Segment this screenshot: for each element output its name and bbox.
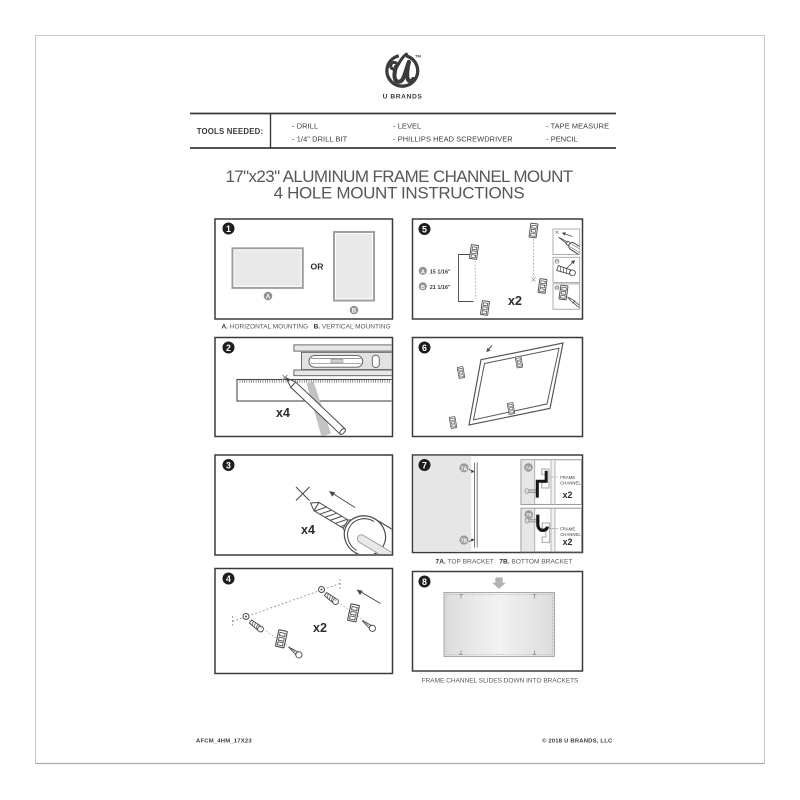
- svg-text:- LEVEL: - LEVEL: [393, 122, 421, 131]
- svg-text:6: 6: [422, 343, 427, 353]
- svg-text:21 1/16": 21 1/16": [430, 285, 451, 291]
- svg-text:15 1/16": 15 1/16": [430, 270, 451, 276]
- svg-text:x2: x2: [313, 621, 327, 635]
- svg-text:B: B: [421, 285, 425, 291]
- svg-text:2: 2: [226, 343, 231, 353]
- svg-text:x4: x4: [301, 523, 315, 537]
- svg-text:- 1/4" DRILL BIT: - 1/4" DRILL BIT: [292, 135, 348, 144]
- svg-text:B: B: [352, 308, 357, 315]
- svg-text:7B: 7B: [526, 513, 533, 518]
- svg-text:7B: 7B: [461, 539, 468, 545]
- svg-text:AFCM_4HM_17X23: AFCM_4HM_17X23: [196, 739, 252, 745]
- svg-text:7A. TOP BRACKET 7B. BOTTOM B: 7A. TOP BRACKET 7B. BOTTOM BRACKET: [436, 559, 573, 566]
- svg-text:x2: x2: [508, 294, 522, 308]
- svg-text:x4: x4: [276, 406, 290, 420]
- svg-text:4 HOLE MOUNT INSTRUCTIONS: 4 HOLE MOUNT INSTRUCTIONS: [274, 184, 525, 203]
- svg-text:3: 3: [226, 460, 231, 470]
- svg-text:x2: x2: [563, 537, 573, 547]
- svg-text:4: 4: [226, 574, 231, 584]
- svg-text:- TAPE MEASURE: - TAPE MEASURE: [546, 122, 609, 131]
- svg-text:FRAME: FRAME: [560, 526, 575, 531]
- svg-text:TM: TM: [415, 54, 421, 59]
- svg-text:7: 7: [422, 460, 427, 470]
- svg-text:1: 1: [226, 224, 231, 234]
- svg-text:A: A: [266, 294, 271, 301]
- svg-text:x2: x2: [563, 490, 573, 500]
- svg-text:FRAME: FRAME: [560, 475, 575, 480]
- svg-text:TOOLS NEEDED:: TOOLS NEEDED:: [197, 127, 264, 136]
- svg-text:- DRILL: - DRILL: [292, 122, 318, 131]
- svg-text:U BRANDS: U BRANDS: [383, 94, 423, 101]
- svg-text:- PHILLIPS HEAD SCREWDRIVER: - PHILLIPS HEAD SCREWDRIVER: [393, 135, 513, 144]
- svg-text:FRAME CHANNEL SLIDES DOWN INTO: FRAME CHANNEL SLIDES DOWN INTO BRACKETS: [422, 678, 579, 685]
- svg-text:5: 5: [422, 224, 427, 234]
- svg-text:8: 8: [422, 577, 427, 587]
- svg-text:CHANNEL: CHANNEL: [560, 481, 581, 486]
- svg-text:© 2018 U BRANDS, LLC: © 2018 U BRANDS, LLC: [542, 738, 613, 745]
- svg-text:OR: OR: [311, 262, 325, 272]
- svg-text:- PENCIL: - PENCIL: [546, 135, 578, 144]
- svg-text:7A: 7A: [461, 466, 468, 472]
- svg-text:A. HORIZONTAL MOUNTING B. VE: A. HORIZONTAL MOUNTING B. VERTICAL MOUNT…: [221, 324, 390, 331]
- svg-text:7A: 7A: [525, 465, 532, 470]
